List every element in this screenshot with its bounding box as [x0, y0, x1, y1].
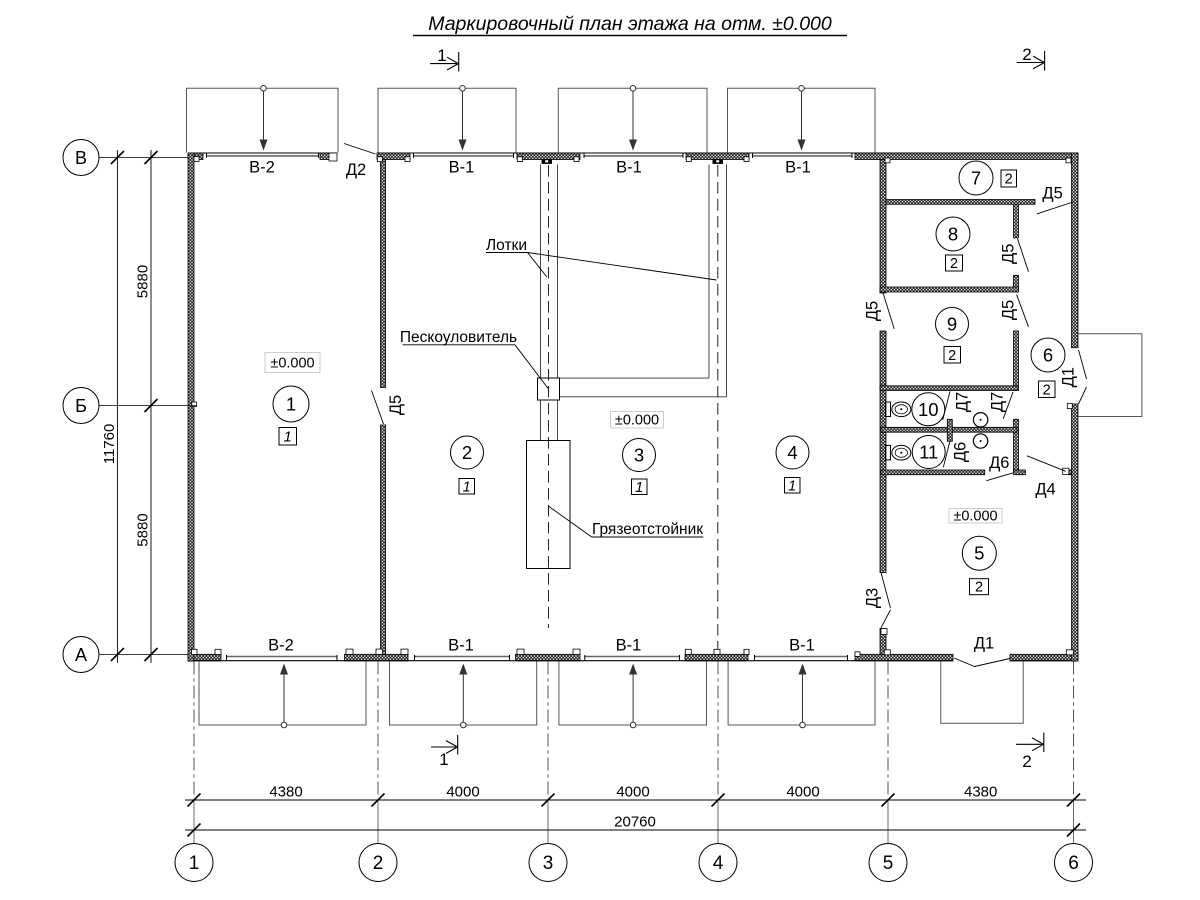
svg-text:7: 7	[971, 168, 981, 189]
svg-text:Д1: Д1	[974, 635, 994, 653]
svg-text:2: 2	[1022, 45, 1031, 64]
svg-text:4: 4	[713, 853, 724, 874]
svg-text:4000: 4000	[786, 784, 819, 801]
svg-text:Д5: Д5	[864, 301, 882, 321]
svg-text:4000: 4000	[616, 784, 649, 801]
svg-text:6: 6	[1068, 853, 1079, 874]
svg-text:Пескоуловитель: Пескоуловитель	[400, 329, 517, 346]
svg-text:5880: 5880	[135, 265, 152, 298]
svg-text:Д4: Д4	[1035, 481, 1055, 499]
svg-text:Д5: Д5	[1000, 300, 1018, 320]
svg-text:Д5: Д5	[387, 395, 405, 415]
svg-text:3: 3	[543, 853, 554, 874]
svg-text:2: 2	[462, 442, 472, 463]
svg-text:2: 2	[975, 580, 983, 596]
svg-text:8: 8	[948, 224, 958, 245]
svg-text:В-1: В-1	[616, 159, 642, 177]
svg-text:Лотки: Лотки	[486, 237, 527, 254]
svg-text:Д6: Д6	[952, 442, 970, 462]
svg-text:5880: 5880	[135, 513, 152, 546]
svg-text:В: В	[75, 148, 87, 168]
svg-text:4380: 4380	[964, 784, 997, 801]
svg-text:Д6: Д6	[989, 454, 1009, 472]
svg-text:Д2: Д2	[346, 161, 366, 179]
svg-text:1: 1	[189, 853, 200, 874]
svg-text:20760: 20760	[614, 814, 656, 831]
svg-text:5: 5	[883, 853, 894, 874]
svg-text:±0.000: ±0.000	[953, 509, 997, 525]
svg-text:Д3: Д3	[864, 588, 882, 608]
svg-text:2: 2	[373, 853, 384, 874]
svg-text:2: 2	[1022, 752, 1031, 771]
svg-text:1: 1	[788, 478, 796, 494]
svg-text:1: 1	[635, 480, 643, 496]
svg-text:4: 4	[787, 442, 797, 463]
svg-text:А: А	[75, 645, 87, 665]
svg-text:Д1: Д1	[1060, 367, 1078, 387]
svg-text:В-2: В-2	[268, 637, 294, 655]
svg-text:В-2: В-2	[249, 159, 275, 177]
svg-text:4380: 4380	[269, 784, 302, 801]
svg-text:Д5: Д5	[1000, 244, 1018, 264]
svg-text:1: 1	[463, 479, 471, 495]
svg-text:Маркировочный план этажа на от: Маркировочный план этажа на отм. ±0.000	[428, 13, 832, 35]
svg-text:3: 3	[634, 445, 644, 466]
svg-text:11: 11	[919, 442, 938, 463]
svg-text:Грязеотстойник: Грязеотстойник	[592, 521, 703, 538]
svg-text:11760: 11760	[101, 424, 118, 465]
svg-text:2: 2	[950, 256, 958, 272]
svg-text:4000: 4000	[446, 784, 479, 801]
svg-text:Д7: Д7	[954, 392, 972, 412]
svg-text:5: 5	[974, 543, 984, 564]
svg-text:1: 1	[286, 394, 296, 415]
svg-text:В-1: В-1	[448, 637, 474, 655]
svg-text:В-1: В-1	[449, 159, 475, 177]
svg-text:В-1: В-1	[789, 637, 815, 655]
svg-text:В-1: В-1	[785, 159, 811, 177]
svg-text:Б: Б	[75, 396, 87, 416]
svg-text:6: 6	[1043, 345, 1053, 366]
svg-text:2: 2	[948, 348, 956, 364]
svg-text:2: 2	[1005, 172, 1013, 188]
svg-text:1: 1	[284, 429, 292, 446]
svg-text:Д7: Д7	[989, 392, 1007, 412]
svg-text:±0.000: ±0.000	[270, 356, 314, 372]
svg-text:Д5: Д5	[1042, 185, 1062, 203]
svg-text:9: 9	[947, 314, 957, 335]
svg-text:10: 10	[918, 399, 939, 420]
svg-text:1: 1	[437, 46, 446, 65]
svg-text:±0.000: ±0.000	[615, 413, 659, 429]
svg-text:2: 2	[1043, 382, 1051, 398]
svg-text:В-1: В-1	[616, 637, 642, 655]
